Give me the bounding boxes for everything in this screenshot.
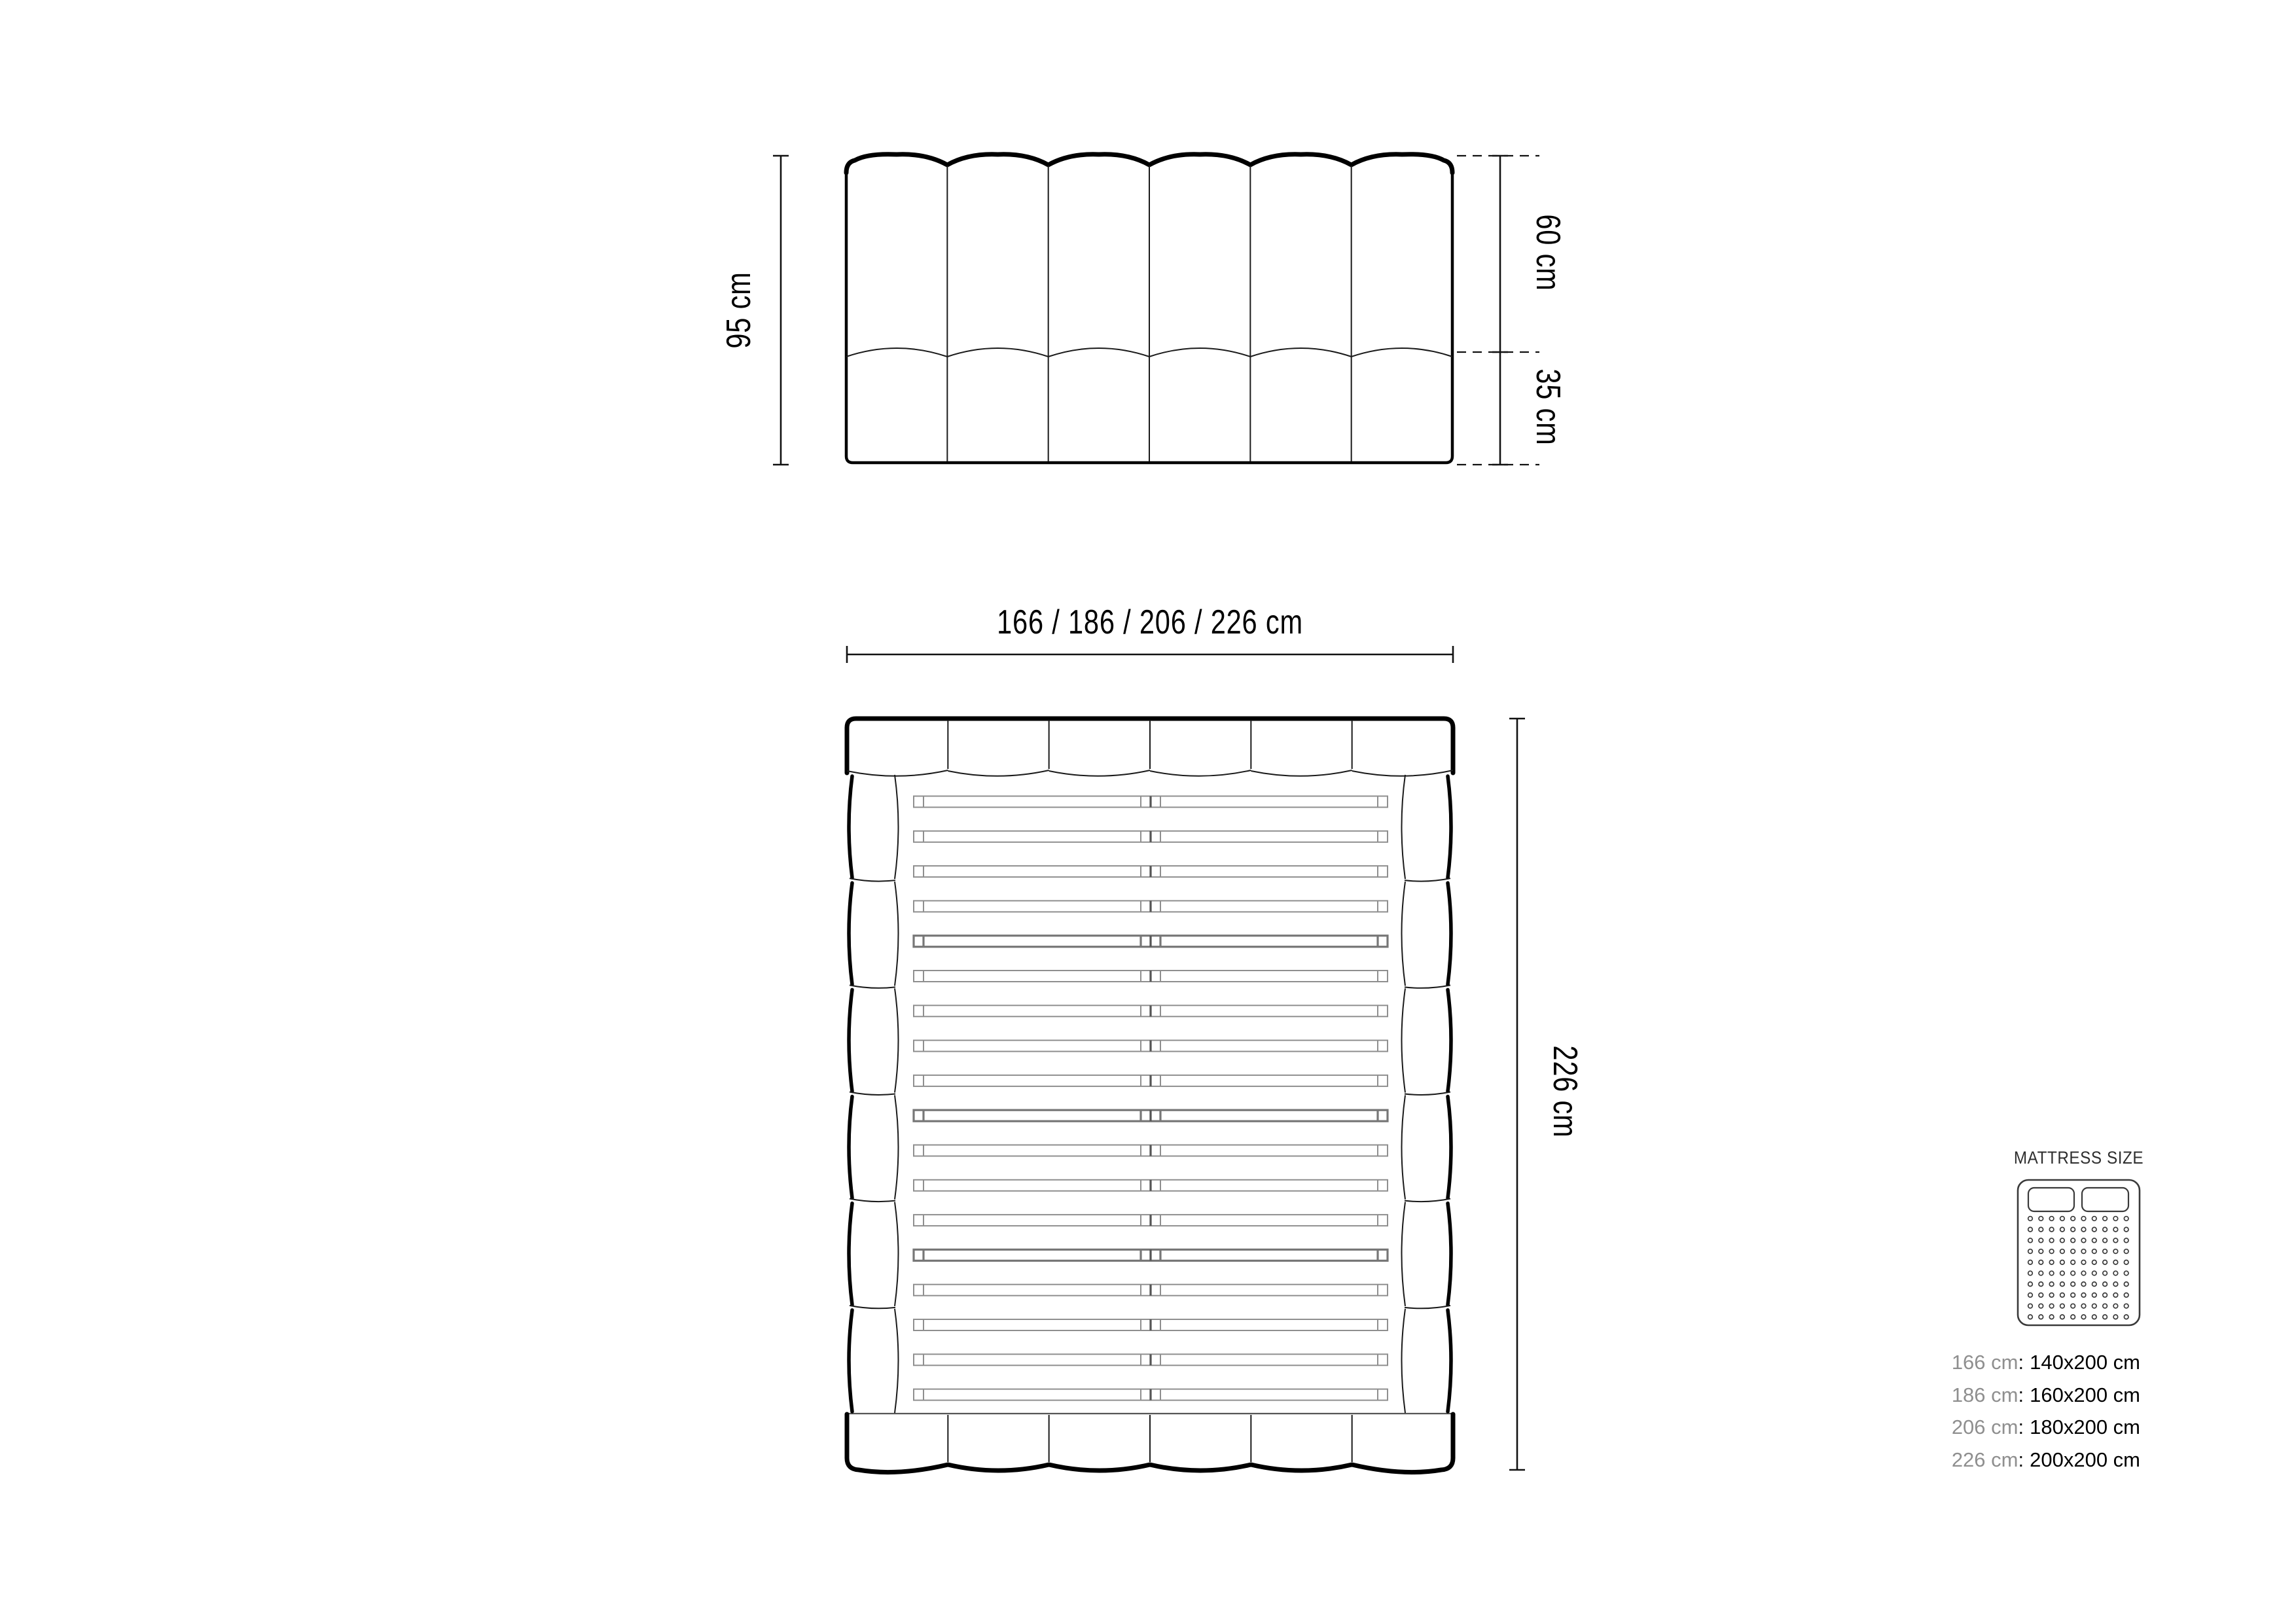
slat-base: [914, 796, 1388, 1400]
size-row: 166 cm:140x200 cm: [1872, 1346, 2140, 1379]
total-height-label: 95 cm: [719, 272, 758, 348]
pillow-right-icon: [2082, 1188, 2128, 1211]
size-row: 206 cm:180x200 cm: [1872, 1411, 2140, 1444]
length-dimension: 226 cm: [1509, 719, 1585, 1470]
width-options-label: 166 / 186 / 206 / 226 cm: [997, 603, 1303, 641]
mattress-size-table: 166 cm:140x200 cm 186 cm:160x200 cm 206 …: [1872, 1346, 2140, 1476]
bed-dimension-sheet: { "front_view": { "total_height": "95 cm…: [0, 0, 2296, 1623]
mattress-quilting-dots: [2028, 1217, 2128, 1319]
pillow-left-icon: [2028, 1188, 2074, 1211]
bed-top-view: 166 / 186 / 206 / 226 cm 226 cm: [812, 589, 1604, 1505]
length-label: 226 cm: [1547, 1045, 1585, 1137]
headboard-front-view: 95 cm 60 cm 35 cm: [707, 124, 1597, 530]
upper-height-label: 60 cm: [1530, 214, 1568, 291]
width-dimension: 166 / 186 / 206 / 226 cm: [847, 603, 1453, 663]
lower-height-label: 35 cm: [1530, 368, 1568, 445]
headboard-outline: [846, 154, 1452, 463]
mattress-size-title: MATTRESS SIZE: [1999, 1148, 2159, 1168]
mattress-icon: [2011, 1173, 2149, 1334]
height-dimension-95: 95 cm: [719, 156, 789, 465]
size-row: 186 cm:160x200 cm: [1872, 1379, 2140, 1412]
size-row: 226 cm:200x200 cm: [1872, 1444, 2140, 1476]
headboard-split-dimensions: 60 cm 35 cm: [1457, 156, 1568, 465]
